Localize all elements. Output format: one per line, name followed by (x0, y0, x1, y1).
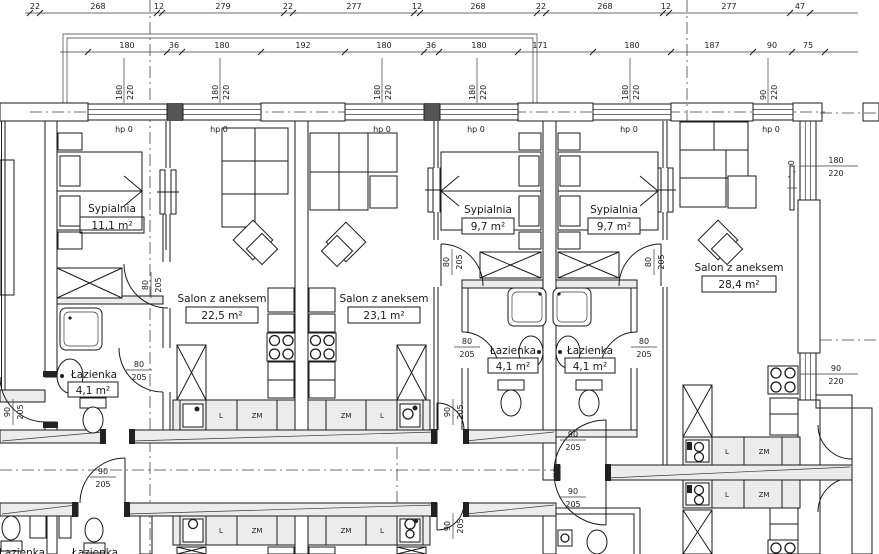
wall-left (45, 121, 57, 377)
dim-label: 180 (376, 41, 391, 50)
window-dim: 180 220 (468, 58, 488, 103)
apartment-2 (308, 121, 546, 430)
window-dimension-pairs: 180 220 180 220 180 220 180 220 180 220 … (115, 58, 779, 103)
dim-label: 80 (639, 337, 649, 346)
dishwasher-label: ZM (341, 412, 352, 420)
dim-label: 180 (115, 85, 124, 100)
door-dim: 90 205 (560, 487, 586, 509)
door-dim: 90 205 (3, 399, 25, 425)
dim-label: 90 (831, 364, 841, 373)
room-label-lazienka-a: Łazienka 4,1 m² (68, 369, 118, 397)
kitchen (308, 516, 430, 554)
toilet (498, 380, 524, 416)
dishwasher-label: ZM (759, 491, 770, 499)
room-name: Sypialnia (590, 204, 638, 216)
floorplan-drawing: 22 268 12 279 22 277 12 268 22 268 12 27… (0, 0, 879, 554)
apartment-3 (553, 121, 800, 465)
coffee-table (370, 176, 397, 208)
lower-units: Łazienka Łazienka (0, 480, 800, 554)
dim-label: 205 (16, 404, 25, 419)
hp-label: hp 0 (210, 125, 228, 134)
room-label-salon-b: Salon z aneksem 23,1 m² (339, 293, 428, 323)
dim-label: 80 (462, 337, 472, 346)
door-dim: 80 205 (442, 249, 464, 275)
wall-pier (798, 200, 820, 353)
dim-label: 36 (426, 41, 436, 50)
dim-label: 205 (455, 254, 464, 269)
door-dim: 80 205 (454, 337, 480, 359)
pillow (519, 196, 539, 226)
kitchen (683, 366, 800, 465)
room-area: 9,7 m² (597, 221, 631, 233)
dishwasher-label: ZM (341, 527, 352, 535)
room-name: Łazienka (566, 345, 613, 357)
dim-label: 90 (98, 467, 108, 476)
dim-label: 205 (456, 404, 465, 419)
hp-label: hp 0 (115, 125, 133, 134)
dim-label: 205 (657, 254, 666, 269)
pillow (560, 196, 580, 226)
room-area: 9,7 m² (471, 221, 505, 233)
table (321, 222, 365, 266)
shower (60, 308, 102, 350)
dim-label: 180 (468, 85, 477, 100)
fridge-label: L (219, 412, 223, 420)
kitchen (173, 516, 295, 554)
dim-label: 180 (621, 85, 630, 100)
dim-label: 90 (443, 521, 452, 531)
window-dim: 180 220 (373, 58, 393, 103)
window (88, 104, 167, 120)
dim-label: 22 (283, 2, 293, 11)
dim-label: 12 (412, 2, 422, 11)
dim-label: 268 (470, 2, 485, 11)
room-name: Salon z aneksem (694, 262, 783, 274)
bathroom (556, 508, 640, 554)
toilet (576, 380, 602, 416)
room-area: 23,1 m² (363, 310, 404, 322)
dim-label: 80 (141, 280, 150, 290)
room-name: Łazienka (71, 547, 118, 554)
dim-label: 180 (119, 41, 134, 50)
room-name: Łazienka (70, 369, 117, 381)
dim-label: 80 (134, 360, 144, 369)
dim-label: 220 (222, 85, 231, 100)
room-name: Łazienka (489, 345, 536, 357)
door-arc (818, 425, 852, 459)
nightstand (519, 133, 541, 150)
room-area: 4,1 m² (496, 361, 530, 373)
neighbor-furniture (0, 160, 14, 295)
dim-label: 220 (770, 85, 779, 100)
dim-label: 90 (3, 407, 12, 417)
window (593, 104, 671, 120)
toilet (80, 398, 106, 433)
dim-label: 36 (169, 41, 179, 50)
dim-label: 220 (632, 85, 641, 100)
dim-label: 180 (214, 41, 229, 50)
dim-label: 268 (90, 2, 105, 11)
window (440, 104, 518, 120)
party-wall (295, 121, 308, 443)
fridge-label: L (380, 412, 384, 420)
room-name: Sypialnia (464, 204, 512, 216)
dimension-row-2: 180 36 180 192 180 36 180 171 180 187 90… (60, 41, 858, 55)
wardrobe (480, 252, 541, 278)
window (183, 104, 261, 120)
window-dim: 180 220 (115, 58, 135, 103)
dim-label: 279 (215, 2, 230, 11)
room-name: Salon z aneksem (177, 293, 266, 305)
room-label-salon-a: Salon z aneksem 22,5 m² (177, 293, 266, 323)
dim-label: 205 (95, 480, 110, 489)
wall-outer (852, 408, 872, 554)
toilet (1, 516, 22, 551)
dim-label: 220 (479, 85, 488, 100)
room-name: Łazienka (0, 547, 45, 554)
dim-label: 205 (154, 277, 163, 292)
dim-label: 80 (644, 257, 653, 267)
fridge-label: L (380, 527, 384, 535)
wall (47, 516, 57, 554)
shower (508, 288, 546, 326)
door-arc (818, 478, 852, 512)
dim-label: 277 (346, 2, 361, 11)
coffee-table (728, 176, 756, 208)
toilet (587, 530, 607, 554)
wardrobe (57, 268, 122, 298)
window-dim: 90 220 (759, 58, 779, 103)
exterior-wall-top (0, 103, 879, 121)
door-dim: 80 205 (141, 272, 163, 298)
table (698, 220, 742, 264)
dim-label: 12 (154, 2, 164, 11)
window-dim: 180 220 (211, 58, 231, 103)
wall-step (816, 395, 852, 408)
dim-label: 220 (828, 169, 843, 178)
hp-label: hp 0 (467, 125, 485, 134)
shower (553, 288, 591, 326)
nightstand (558, 232, 580, 249)
room-name: Salon z aneksem (339, 293, 428, 305)
sofa (222, 128, 288, 227)
pillow (519, 156, 539, 186)
dim-label: 192 (295, 41, 310, 50)
room-label-salon-c: Salon z aneksem 28,4 m² (694, 262, 783, 292)
room-area: 28,4 m² (718, 279, 759, 291)
window-mullion (167, 103, 183, 121)
dim-label: 47 (795, 2, 805, 11)
nightstand (58, 133, 82, 150)
door-dim: 80 205 (631, 337, 657, 359)
window (345, 104, 424, 120)
fridge-label: L (219, 527, 223, 535)
dim-label: 22 (536, 2, 546, 11)
dishwasher-label: ZM (252, 412, 263, 420)
dim-label: 205 (131, 373, 146, 382)
dim-label: 90 (443, 407, 452, 417)
dim-label: 180 (471, 41, 486, 50)
dim-label: 205 (565, 443, 580, 452)
dim-label: 277 (721, 2, 736, 11)
dim-label: 75 (803, 41, 813, 50)
kitchen (683, 480, 800, 554)
dishwasher-label: ZM (759, 448, 770, 456)
dim-label: 90 (568, 430, 578, 439)
room-area: 4,1 m² (573, 361, 607, 373)
room-area: 22,5 m² (201, 310, 242, 322)
dim-label: 180 (624, 41, 639, 50)
dim-label: 205 (456, 518, 465, 533)
dim-label: 220 (126, 85, 135, 100)
dim-label: 90 (759, 90, 768, 100)
dim-label: 90 (767, 41, 777, 50)
door-dim: 80 205 (644, 249, 666, 275)
wall-pier (863, 103, 879, 121)
door-dim: 80 205 (126, 360, 152, 382)
pillow (60, 156, 80, 186)
dim-label: 12 (661, 2, 671, 11)
room-area: 11,1 m² (91, 220, 132, 232)
floorplan-page: 22 268 12 279 22 277 12 268 22 268 12 27… (0, 0, 879, 554)
door-dim: 90 205 (443, 513, 465, 539)
dishwasher-label: ZM (252, 527, 263, 535)
fridge-label: L (725, 491, 729, 499)
window-dim: 180 220 (621, 58, 641, 103)
dim-label: 22 (30, 2, 40, 11)
dim-label: 268 (597, 2, 612, 11)
dim-label: 205 (565, 500, 580, 509)
dim-label: 205 (459, 350, 474, 359)
dim-label: 205 (636, 350, 651, 359)
pillow (560, 156, 580, 186)
window-mullion (424, 103, 440, 121)
kitchen-sink (183, 404, 203, 427)
dim-label: 180 (211, 85, 220, 100)
dim-label: 80 (442, 257, 451, 267)
room-area: 4,1 m² (76, 385, 110, 397)
dim-label: 220 (384, 85, 393, 100)
dim-label: 187 (704, 41, 719, 50)
dim-label: 180 (373, 85, 382, 100)
room-label-sypialnia-c: Sypialnia 9,7 m² (588, 204, 640, 234)
dim-label: 171 (532, 41, 547, 50)
nightstand (558, 133, 580, 150)
room-label-lazienka-c: Łazienka 4,1 m² (565, 345, 615, 373)
window (753, 104, 793, 120)
hp-label: hp 0 (620, 125, 638, 134)
nightstand (519, 232, 541, 249)
dim-label: 90 (568, 487, 578, 496)
window (800, 121, 816, 200)
fridge-label: L (725, 448, 729, 456)
window (800, 353, 816, 400)
wardrobe (558, 252, 619, 278)
pillow (60, 196, 80, 226)
room-label-sypialnia-b: Sypialnia 9,7 m² (462, 204, 514, 234)
nightstand (58, 232, 82, 249)
room-name: Sypialnia (88, 203, 136, 215)
dim-label: 220 (828, 377, 843, 386)
dim-label: 180 (828, 156, 843, 165)
hp-label: hp 0 (762, 125, 780, 134)
room-label-lazienka-b: Łazienka 4,1 m² (488, 345, 538, 373)
